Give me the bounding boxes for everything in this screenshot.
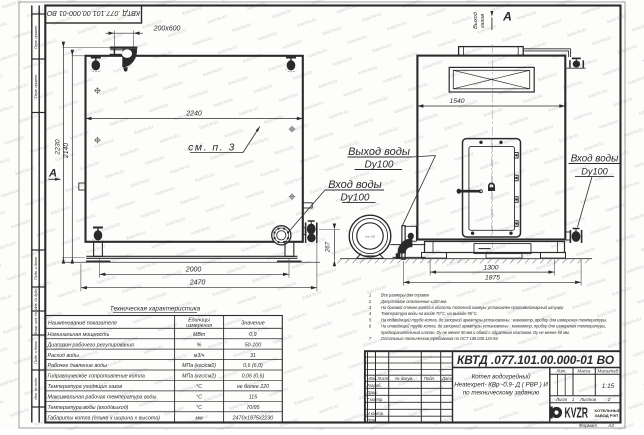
svg-text:КВТД .077.101.00.000-01 ВО: КВТД .077.101.00.000-01 ВО: [46, 9, 140, 17]
svg-text:МПа (кгс/см2): МПа (кгс/см2): [182, 374, 216, 380]
svg-text:Dy100: Dy100: [365, 160, 394, 171]
svg-text:Температура уходящих газов: Температура уходящих газов: [48, 384, 123, 390]
svg-text:А3: А3: [607, 423, 614, 428]
svg-text:200х600: 200х600: [153, 26, 181, 33]
svg-text:2140: 2140: [63, 143, 70, 159]
svg-text:Листов: Листов: [579, 397, 597, 402]
svg-text:2000: 2000: [185, 266, 202, 273]
svg-text:Подп. и дата: Подп. и дата: [34, 341, 38, 364]
svg-text:Перв. примен.: Перв. примен.: [34, 74, 38, 98]
svg-text:0,9: 0,9: [249, 332, 256, 338]
svg-text:Техническая характеристика: Техническая характеристика: [110, 306, 201, 313]
svg-text:KVZR: KVZR: [565, 406, 589, 422]
svg-text:Выход воды: Выход воды: [348, 146, 410, 158]
svg-text:2470: 2470: [189, 280, 206, 287]
svg-text:1540: 1540: [449, 98, 464, 105]
svg-text:Подп.: Подп.: [424, 376, 435, 381]
svg-text:мм: мм: [196, 415, 204, 421]
svg-text:На боковой стенке котла в обла: На боковой стенке котла в области топочн…: [381, 305, 564, 310]
svg-text:267: 267: [324, 241, 331, 253]
svg-text:Инв. № подл.: Инв. № подл.: [34, 377, 38, 399]
svg-text:Расход воды: Расход воды: [48, 353, 79, 359]
svg-text:31: 31: [250, 353, 256, 359]
svg-text:%: %: [197, 342, 202, 348]
svg-text:Диапазон рабочего регулировани: Диапазон рабочего регулирования: [47, 342, 135, 348]
svg-text:МПа (кгс/см2): МПа (кгс/см2): [182, 363, 216, 369]
svg-text:МВт: МВт: [193, 332, 206, 338]
svg-text:тип 100: тип 100: [365, 235, 376, 239]
svg-text:№ докум.: № докум.: [395, 376, 413, 381]
svg-text:1:15: 1:15: [602, 383, 615, 390]
svg-text:Котел водогрейный: Котел водогрейный: [472, 374, 531, 381]
svg-text:Все размеры для справок: Все размеры для справок: [381, 293, 430, 298]
svg-text:ЗАВОД РЭП: ЗАВОД РЭП: [595, 413, 619, 418]
svg-text:Лист: Лист: [377, 376, 389, 381]
svg-text:Пров.: Пров.: [367, 390, 378, 395]
svg-text:по техническому заданию: по техническому заданию: [463, 390, 540, 397]
svg-text:Лист: Лист: [555, 397, 568, 402]
svg-text:1: 1: [369, 293, 371, 298]
svg-text:Гидравлическое сопротивление к: Гидравлическое сопротивление котла: [48, 374, 145, 380]
svg-text:газов: газов: [480, 14, 486, 28]
svg-text:1: 1: [572, 397, 575, 402]
svg-text:2: 2: [607, 397, 611, 402]
svg-text:измерения: измерения: [186, 323, 212, 329]
svg-text:°С: °С: [196, 384, 202, 390]
svg-text:Heatexpert- КВр -0,9- Д ( РВР: Heatexpert- КВр -0,9- Д ( РВР ) И: [454, 382, 548, 389]
svg-text:Остальные технические требован: Остальные технические требования по ОСТ …: [381, 336, 499, 341]
svg-text:А: А: [502, 10, 512, 24]
svg-text:115: 115: [249, 394, 257, 400]
svg-text:Подп. и дата: Подп. и дата: [34, 257, 38, 280]
svg-text:Взам. инв. №: Взам. инв. №: [34, 312, 38, 334]
svg-text:°С: °С: [196, 405, 202, 411]
svg-text:см. п. 3: см. п. 3: [188, 142, 236, 154]
svg-text:Масса: Масса: [578, 369, 592, 374]
svg-text:70/95: 70/95: [246, 405, 259, 411]
svg-text:Dy100: Dy100: [341, 193, 370, 204]
svg-text:Температура воды (вход/выход): Температура воды (вход/выход): [48, 405, 129, 411]
svg-text:Инв. № дубл.: Инв. № дубл.: [34, 288, 38, 310]
svg-text:КВТД .077.101.00.000-01 ВО: КВТД .077.101.00.000-01 ВО: [457, 353, 614, 367]
svg-text:Утв.: Утв.: [367, 418, 377, 423]
svg-text:А: А: [48, 168, 57, 180]
svg-text:2230: 2230: [54, 139, 61, 155]
svg-text:Н.контр.: Н.контр.: [367, 411, 385, 416]
svg-text:Температура воды на входе 70°: Температура воды на входе 70°С, на выход…: [381, 311, 478, 316]
svg-text:Вход воды: Вход воды: [571, 154, 619, 165]
svg-text:Дата: Дата: [441, 376, 454, 381]
svg-text:Dy100: Dy100: [581, 167, 608, 177]
svg-text:Допустимое отклонение ±100 мм: Допустимое отклонение ±100 мм.: [380, 299, 447, 304]
svg-text:не более 220: не более 220: [237, 384, 269, 390]
svg-text:°С: °С: [196, 394, 202, 400]
svg-text:Разраб.: Разраб.: [367, 383, 382, 388]
svg-text:2240: 2240: [185, 111, 202, 118]
svg-text:На подводящей трубе котла, до: На подводящей трубе котла, до запорной а…: [381, 317, 607, 322]
svg-text:Максимальная рабочая температу: Максимальная рабочая температура воды: [48, 394, 157, 400]
svg-text:Лит.: Лит.: [555, 369, 566, 374]
svg-text:0,06 (0,6): 0,06 (0,6): [242, 374, 265, 380]
svg-text:1300: 1300: [483, 265, 498, 272]
svg-text:0,6 (6,0): 0,6 (6,0): [243, 363, 263, 369]
svg-text:Номинальная мощность: Номинальная мощность: [48, 332, 110, 338]
svg-text:Масштаб: Масштаб: [598, 369, 619, 374]
svg-text:Т.контр.: Т.контр.: [367, 397, 384, 402]
svg-text:Габариты котла (длина х ширина: Габариты котла (длина х ширина х высота): [48, 415, 161, 421]
svg-text:На отводящей трубе котла, до з: На отводящей трубе котла, до запорной ар…: [381, 324, 606, 329]
svg-text:Рабочее давление воды: Рабочее давление воды: [48, 363, 107, 369]
svg-text:Значение: Значение: [241, 321, 265, 327]
svg-text:1875: 1875: [485, 275, 500, 282]
svg-text:Перв. примен.: Перв. примен.: [34, 25, 38, 49]
svg-text:50-100: 50-100: [245, 342, 262, 348]
svg-text:м3/ч: м3/ч: [194, 353, 205, 359]
svg-text:Формат: Формат: [579, 423, 597, 428]
svg-text:Наименование показателя: Наименование показателя: [48, 321, 117, 327]
svg-text:2470х1875х2230: 2470х1875х2230: [232, 415, 274, 421]
svg-text:Изм.: Изм.: [369, 376, 378, 381]
svg-text:Выход: Выход: [473, 12, 479, 29]
svg-text:Вход воды: Вход воды: [328, 179, 381, 191]
svg-text:предохранительный клапан. Dу н: предохранительный клапан. Dу не менее 50…: [381, 330, 570, 335]
